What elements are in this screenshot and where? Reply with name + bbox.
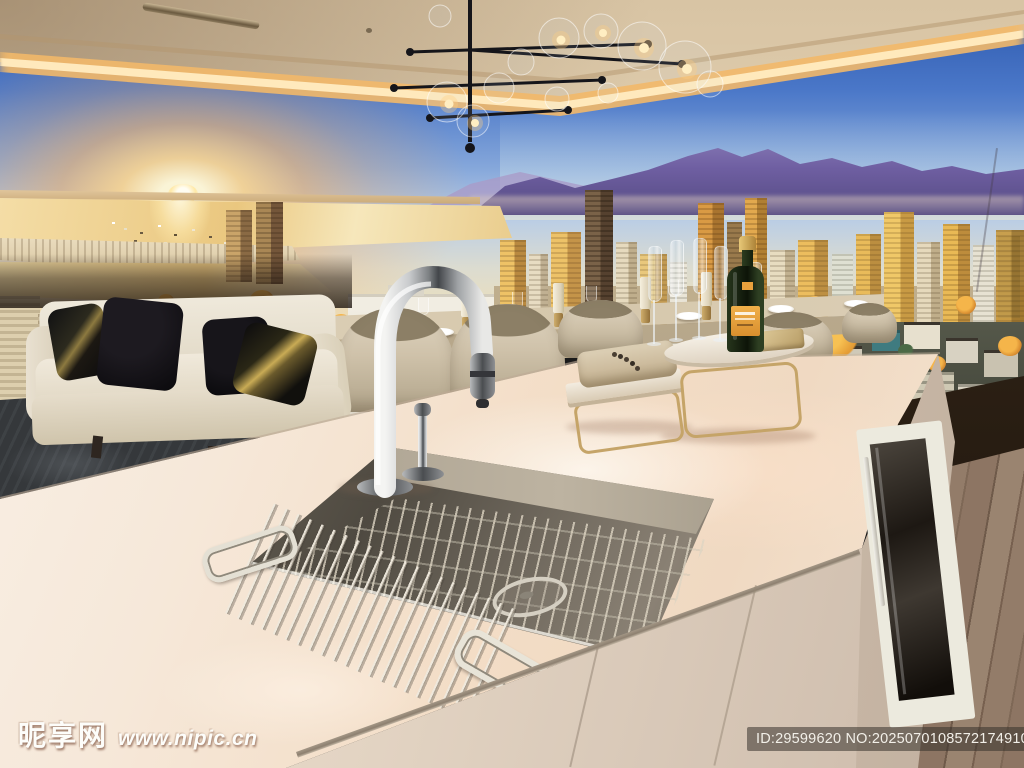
flute-foot	[647, 342, 661, 346]
watermark-site: 昵享网 www.nipic.cn	[18, 714, 257, 754]
label-text-line	[737, 324, 753, 326]
flute-stem	[698, 292, 700, 338]
sprayer-band	[470, 371, 495, 377]
flute-foot	[669, 338, 683, 342]
candle-holder	[702, 306, 711, 320]
site-url: www.nipic.cn	[118, 727, 257, 751]
label-text-line	[735, 312, 755, 315]
label-text-line	[735, 318, 755, 320]
soap-dispenser	[418, 413, 427, 471]
candle-holder	[641, 309, 650, 323]
brass-stand-frame-tall	[679, 361, 802, 439]
champagne-flute	[714, 246, 728, 300]
bottle-neck-label	[742, 282, 753, 290]
sun-reflection	[150, 196, 210, 248]
flute-stem	[675, 294, 677, 340]
gooseneck-faucet	[330, 255, 530, 515]
champagne-flute	[648, 246, 662, 302]
strainer-dome	[519, 590, 534, 600]
flute-stem	[653, 300, 655, 344]
house	[946, 338, 978, 363]
flute-foot	[713, 338, 727, 342]
autumn-tree	[998, 336, 1022, 356]
soap-dispenser-base	[402, 467, 444, 481]
autumn-tree	[956, 296, 976, 314]
sprayer-tip	[476, 399, 489, 408]
fridge-glass-door	[870, 438, 955, 701]
bottle-label	[731, 306, 760, 336]
photo-luxury-kitchen: 昵享网 www.nipic.cn ID:29599620 NO:20250701…	[0, 0, 1024, 768]
soap-dispenser-knob	[414, 403, 431, 416]
champagne-flute	[693, 238, 707, 294]
faucet-arc	[385, 277, 482, 487]
champagne-flute	[670, 240, 684, 296]
ceiling-sensor	[366, 28, 372, 33]
bead-bracelet	[612, 352, 617, 357]
watermark-id-badge: ID:29599620 NO:20250701085721749105	[747, 727, 1024, 751]
flute-foot	[692, 336, 706, 340]
site-logo: 昵享网	[18, 714, 108, 754]
bubble-chandelier	[380, 0, 740, 175]
barrel-chair	[842, 303, 897, 343]
black-velvet-pillow	[96, 296, 185, 392]
pillar-candle	[553, 283, 564, 313]
boats	[112, 222, 115, 224]
flute-stem	[719, 298, 721, 340]
